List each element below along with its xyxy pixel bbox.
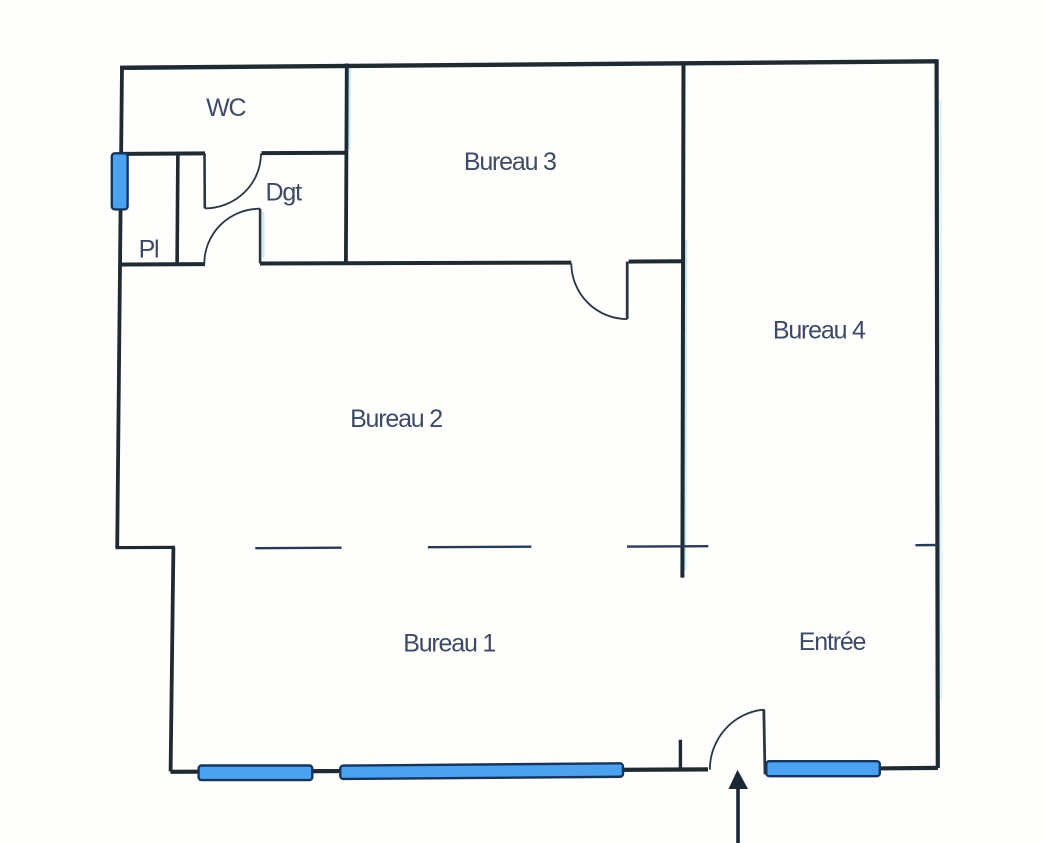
svg-text:Bureau 4: Bureau 4 bbox=[773, 316, 866, 344]
svg-text:Bureau 1: Bureau 1 bbox=[403, 629, 495, 657]
svg-text:Bureau 2: Bureau 2 bbox=[350, 405, 442, 433]
svg-text:Dgt: Dgt bbox=[266, 178, 303, 206]
svg-text:Pl: Pl bbox=[139, 236, 159, 264]
svg-text:Bureau 3: Bureau 3 bbox=[464, 148, 556, 176]
svg-text:Entrée: Entrée bbox=[799, 628, 866, 656]
svg-text:WC: WC bbox=[206, 94, 246, 122]
